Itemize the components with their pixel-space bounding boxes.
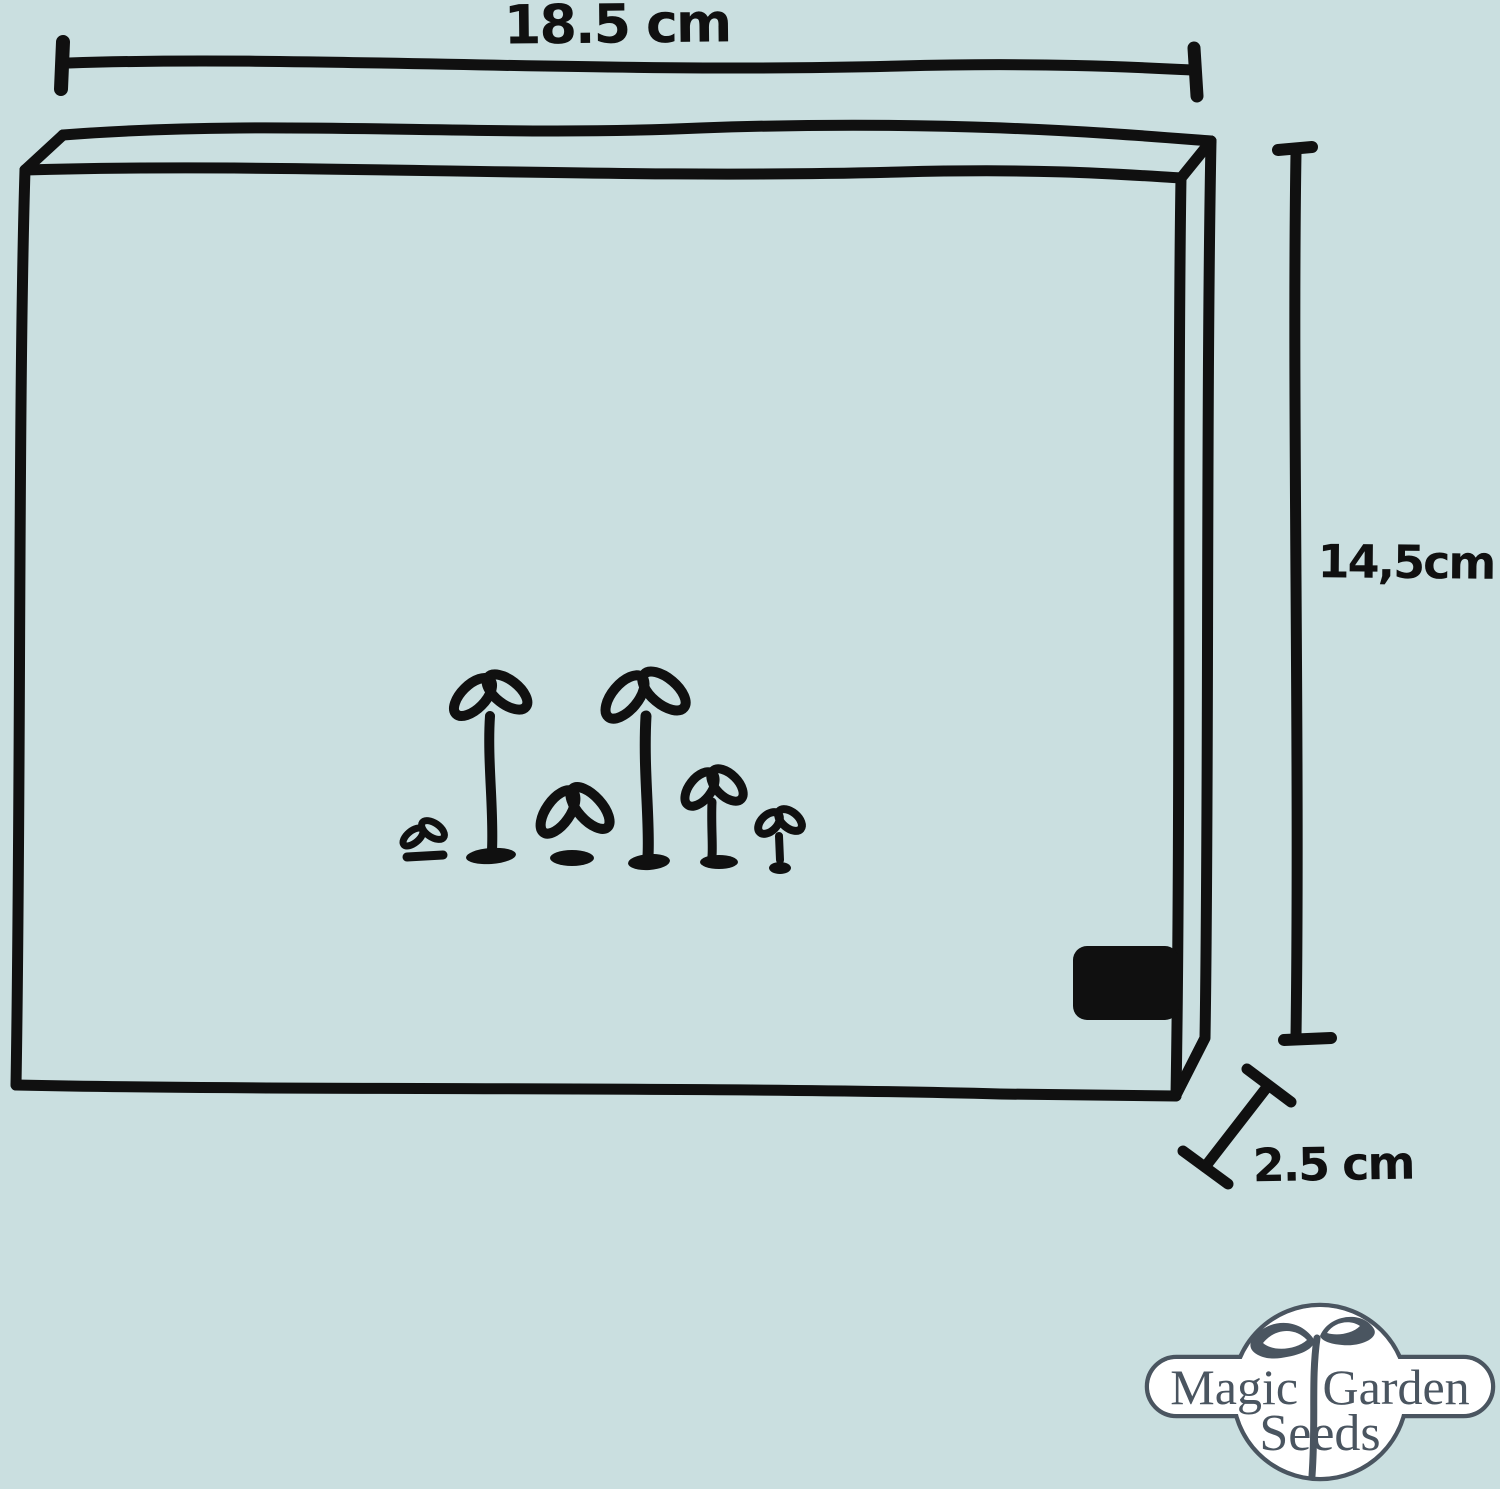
logo-line2: Seeds <box>1259 1405 1380 1462</box>
height-dimension-label: 14,5cm <box>1317 534 1494 590</box>
seed-box <box>16 125 1211 1096</box>
sprout-3-bush <box>534 781 616 866</box>
height-dim-line <box>1295 153 1297 1036</box>
height-dim-bottom-cap <box>1284 1038 1331 1040</box>
seed-box-diagram <box>0 0 1500 1489</box>
depth-dim-bottom-cap <box>1183 1151 1228 1184</box>
sprout-5-medium <box>679 763 749 869</box>
sprout-6-small <box>754 805 806 874</box>
box-back-top-edge <box>63 125 1211 141</box>
width-dim-right-cap <box>1194 48 1197 96</box>
height-dimension-line <box>1278 147 1331 1040</box>
sprout-4-tallest <box>598 664 692 871</box>
box-left-edge <box>16 170 25 1085</box>
brand-logo: Magic Garden Seeds <box>1140 1295 1500 1489</box>
sprouts <box>400 664 806 874</box>
box-bottom-edge <box>16 1085 1176 1096</box>
width-dimension-label: 18.5 cm <box>504 0 731 57</box>
sprout-2-tall <box>448 668 534 866</box>
sketch-canvas: 18.5 cm 14,5cm 2.5 cm Magic Garden Seeds <box>0 0 1500 1489</box>
width-dim-left-cap <box>61 42 63 89</box>
box-front-top-edge <box>25 168 1181 178</box>
width-dim-line <box>69 61 1191 70</box>
box-clasp <box>1073 946 1179 1020</box>
sprout-1-tiny <box>400 817 448 857</box>
depth-dimension-label: 2.5 cm <box>1252 1136 1414 1193</box>
